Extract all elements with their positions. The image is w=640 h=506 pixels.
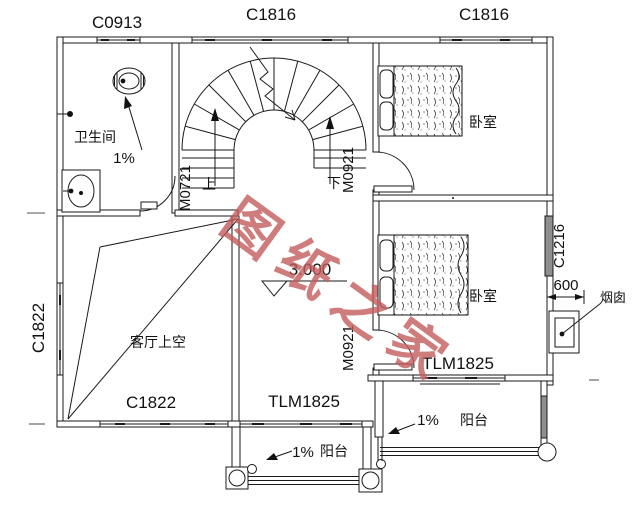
balcony-bottom-slope-label: 1% <box>292 444 314 461</box>
window-label-c1216: C1216 <box>551 224 568 268</box>
floor-plan-svg: 上 下 <box>0 0 640 506</box>
room-label-balcony-right: 阳台 <box>460 412 488 428</box>
window-label-c1816-right: C1816 <box>459 5 509 24</box>
window-label-c1822-bottom: C1822 <box>126 393 176 412</box>
column-round <box>538 443 556 461</box>
room-label-living-void: 客厅上空 <box>130 334 186 350</box>
floor-plan-page: 上 下 <box>0 0 640 506</box>
balcony-right-slope-label: 1% <box>417 412 439 429</box>
bath-slope-label: 1% <box>113 150 135 167</box>
sink-icon <box>62 170 100 212</box>
door-label-m0921-top: M0921 <box>340 147 357 193</box>
window-label-c0913: C0913 <box>92 13 142 32</box>
stairs-down-label: 下 <box>327 175 341 191</box>
room-label-bedroom-right: 卧室 <box>469 288 497 304</box>
bed-top-icon <box>378 66 462 136</box>
door-label-m0721: M0721 <box>177 165 194 211</box>
room-label-bathroom: 卫生间 <box>74 129 116 145</box>
door-label-tlm1825-bottom: TLM1825 <box>268 392 340 411</box>
window-label-c1822-left: C1822 <box>29 303 48 353</box>
room-label-bedroom-top: 卧室 <box>469 114 497 130</box>
room-label-balcony-bottom: 阳台 <box>320 443 348 459</box>
chimney-label: 烟囱 <box>600 290 626 305</box>
window-label-c1816-mid: C1816 <box>246 5 296 24</box>
chimney-width-dim: 600 <box>553 277 578 294</box>
stairs-up-label: 上 <box>202 176 216 192</box>
